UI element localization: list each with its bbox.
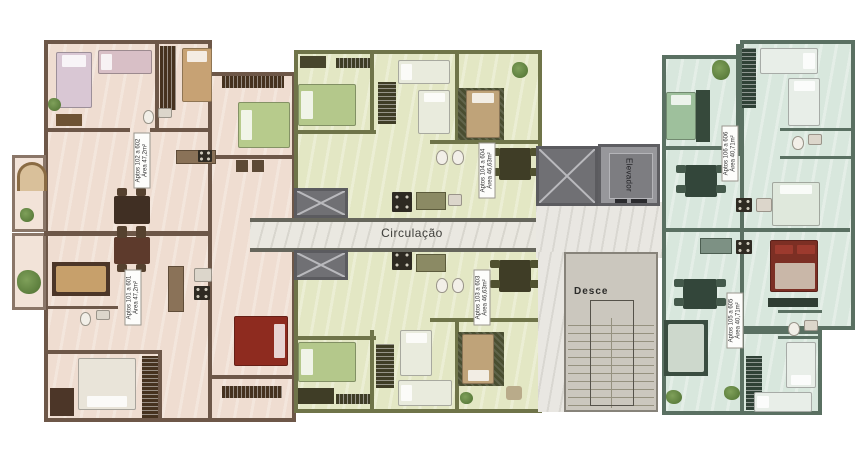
single-bed [462,334,494,384]
kitchen-counter [416,192,446,210]
wardrobe [160,46,176,110]
washer [252,160,264,172]
toilet [80,312,91,326]
dining-table [114,196,150,224]
wall [370,330,374,410]
wardrobe [222,386,282,398]
plant-icon [460,392,473,404]
plant-icon [712,60,730,80]
plant-icon [20,208,34,222]
wall [298,130,376,134]
plant-icon [17,270,41,294]
dining-set [492,254,538,298]
plant-icon [48,98,61,111]
wall [208,155,296,159]
chair [716,279,726,287]
wardrobe [336,394,370,404]
daybed [98,50,152,74]
kitchen-counter [700,238,732,254]
wardrobe [376,344,394,388]
sofa [52,262,110,296]
chair [506,386,522,400]
sink [158,108,172,118]
core-hall-floor [538,252,564,412]
elevator-label: Elevador [625,158,634,192]
wall [662,228,850,232]
tv-panel [300,56,326,68]
dining-set [676,274,724,314]
plant-icon [724,386,740,400]
chair [716,298,726,306]
dining-set [492,142,538,186]
dining-set [108,188,156,234]
dining-table [114,237,150,264]
elevator: Elevador [598,144,660,206]
toilet [792,136,804,150]
chair [490,280,500,288]
wall [150,128,212,132]
toilet [143,110,154,124]
sofa-seat [668,324,704,372]
pillow [775,245,793,254]
toilet [452,150,464,165]
toilet [452,278,464,293]
single-bed [788,78,820,126]
stove [736,198,752,212]
single-bed [754,392,812,412]
chair [676,185,686,193]
double-bed [298,84,356,126]
sink [448,194,462,206]
toilet [436,150,448,165]
unit-label-teal-bottom: Aptos 105 a 605 Área 40,71m² [727,293,744,349]
stove [392,192,412,212]
wall [780,128,853,131]
sink [756,198,772,212]
washer [236,160,248,172]
wall [370,54,374,132]
single-bed [418,90,450,134]
unit-label-teal-top: Aptos 106 a 606 Área 40,71m² [722,126,739,182]
wall [48,350,160,354]
chair [676,165,686,173]
stove [198,150,212,162]
single-bed [182,48,212,102]
single-bed [466,90,500,138]
sink [96,310,110,320]
unit-label-green-bottom: Aptos 103 a 603 Área 46,63m² [474,270,491,326]
chair [136,230,146,238]
single-bed [400,330,432,376]
elevator-door [615,199,627,203]
single-bed [760,48,818,74]
desk [56,114,82,126]
double-bed [234,316,288,366]
double-bed [666,92,696,140]
double-bed [772,182,820,226]
wardrobe [696,90,710,142]
shaft-x-icon [536,146,598,206]
stove [392,250,412,270]
chair [674,298,684,306]
single-bed [56,52,92,108]
toilet [788,322,800,336]
sofa [664,320,708,376]
single-bed [398,380,452,406]
plant-icon [512,62,528,78]
wardrobe [336,58,370,68]
elevator-door [631,199,647,203]
single-bed [786,342,816,388]
dining-set [678,160,724,202]
tv-panel [768,298,818,307]
dining-table [685,165,717,197]
wall [294,336,376,340]
double-bed [298,342,356,382]
double-bed [238,102,290,148]
wardrobe [142,356,158,418]
shaft-x-icon [294,250,348,280]
dining-table [683,279,717,309]
chair [117,230,127,238]
dining-set [108,230,156,272]
single-bed [398,60,450,84]
unit-label-pink-top: Aptos 102 a 602 Área 47,2m² [134,133,151,189]
stair-rail [590,300,634,406]
unit-label-pink-bottom: Aptos 101 a 601 Área 47,2m² [125,270,142,326]
chair [716,185,726,193]
dining-table [499,260,531,292]
wall [48,306,118,309]
armchair [17,162,47,191]
kitchen-counter [416,254,446,272]
sink [194,268,212,282]
shaft-x-icon [294,188,348,218]
core-hall-floor [536,202,662,258]
stove [194,286,210,300]
stairs-label: Desce [574,286,608,297]
stove [736,240,752,254]
staircase: Desce [564,252,658,412]
chair [674,279,684,287]
sink [808,134,822,145]
dining-table [499,148,531,180]
wall [158,350,162,422]
wardrobe [222,76,284,88]
wall [664,146,724,150]
sofa-seat [56,266,106,292]
chair [117,188,127,196]
corridor-label: Circulação [352,226,472,240]
chair [136,188,146,196]
tv-panel [50,388,74,416]
double-bed [78,358,136,410]
unit-label-green-top: Aptos 104 a 604 Área 46,63m² [479,143,496,199]
wall [778,310,822,313]
sink [804,320,818,331]
double-bed [770,240,818,292]
blanket [775,263,815,289]
chair [490,260,500,268]
wardrobe [378,82,396,124]
wall [48,128,130,132]
toilet [436,278,448,293]
pillow [797,245,815,254]
desk [298,388,334,404]
kitchen-counter [168,266,184,312]
wall [780,156,853,159]
wall [208,375,296,379]
wardrobe [742,48,756,108]
floor-plan: Circulação Elevador Desce Aptos 102 a 60… [0,0,863,451]
wall [778,336,822,339]
plant-icon [666,390,682,404]
